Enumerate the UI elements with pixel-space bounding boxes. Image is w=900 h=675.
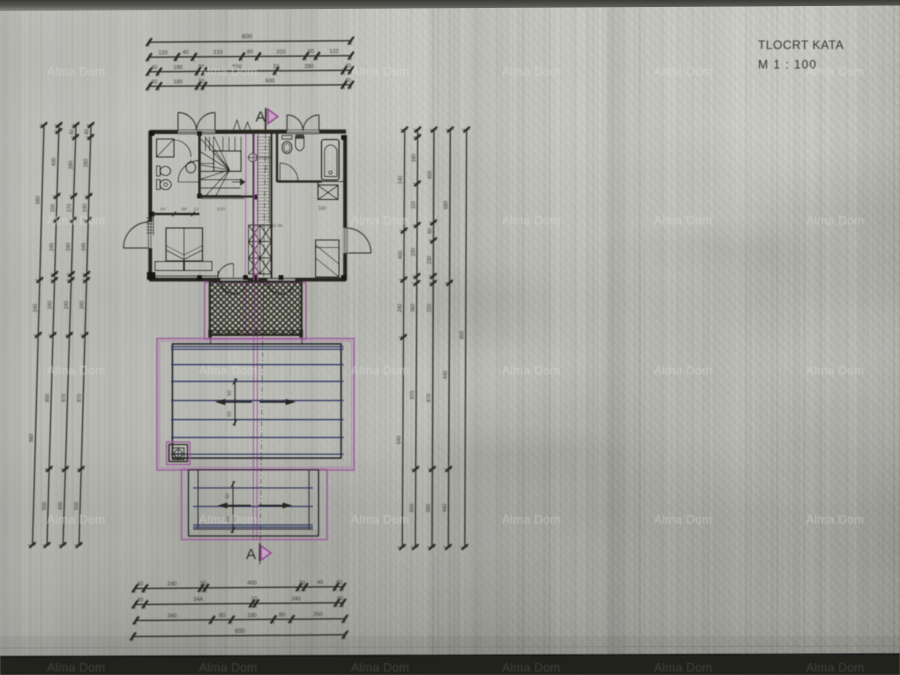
svg-text:870: 870: [77, 394, 83, 403]
svg-text:20: 20: [200, 581, 206, 587]
svg-text:360: 360: [411, 304, 417, 313]
svg-text:Alma Dom: Alma Dom: [502, 661, 560, 675]
svg-text:A: A: [246, 546, 256, 563]
svg-text:Alma Dom: Alma Dom: [806, 364, 864, 378]
svg-text:60: 60: [227, 411, 233, 417]
svg-text:98: 98: [181, 207, 187, 213]
svg-text:200: 200: [50, 204, 56, 213]
svg-text:800: 800: [45, 394, 51, 403]
svg-text:180: 180: [247, 613, 256, 619]
svg-text:Alma Dom: Alma Dom: [351, 65, 409, 79]
svg-text:180: 180: [173, 79, 182, 85]
svg-text:980: 980: [29, 434, 35, 443]
svg-text:84: 84: [160, 207, 166, 213]
svg-text:230: 230: [427, 256, 433, 265]
svg-text:240: 240: [48, 301, 54, 310]
svg-text:Alma Dom: Alma Dom: [654, 661, 712, 675]
svg-text:80: 80: [219, 613, 225, 619]
svg-text:40: 40: [137, 582, 143, 588]
svg-text:245: 245: [49, 243, 55, 252]
svg-text:500: 500: [426, 504, 432, 513]
svg-text:680: 680: [444, 201, 450, 210]
svg-text:Alma Dom: Alma Dom: [502, 214, 560, 228]
svg-text:A: A: [255, 109, 265, 126]
svg-text:10 12 10 10 86: 10 12 10 10 86: [253, 223, 283, 228]
svg-text:245: 245: [81, 243, 87, 252]
svg-text:Alma Dom: Alma Dom: [806, 214, 864, 228]
svg-text:40: 40: [137, 598, 143, 604]
svg-text:260: 260: [84, 159, 90, 168]
svg-text:60: 60: [308, 49, 314, 55]
svg-text:870: 870: [427, 394, 433, 403]
svg-text:169: 169: [318, 206, 327, 212]
svg-text:Alma Dom: Alma Dom: [654, 65, 712, 79]
svg-text:180: 180: [411, 154, 417, 163]
svg-text:40: 40: [151, 80, 157, 86]
svg-text:40: 40: [70, 129, 76, 135]
svg-text:500: 500: [74, 502, 80, 511]
svg-text:Alma Dom: Alma Dom: [502, 364, 560, 378]
svg-text:40: 40: [151, 65, 157, 71]
svg-text:60: 60: [227, 390, 233, 396]
svg-text:40: 40: [85, 129, 91, 135]
svg-text:Alma Dom: Alma Dom: [351, 364, 409, 378]
svg-text:Alma Dom: Alma Dom: [806, 661, 864, 675]
svg-text:20: 20: [299, 580, 305, 586]
svg-text:400: 400: [398, 251, 404, 260]
svg-text:Alma Dom: Alma Dom: [47, 65, 105, 79]
svg-text:30: 30: [198, 79, 204, 85]
svg-text:260: 260: [313, 612, 322, 618]
svg-text:Alma Dom: Alma Dom: [654, 364, 712, 378]
svg-text:Alma Dom: Alma Dom: [199, 65, 257, 79]
svg-text:Alma Dom: Alma Dom: [502, 513, 560, 527]
svg-text:240: 240: [167, 581, 176, 587]
svg-text:120: 120: [158, 50, 167, 56]
svg-text:10: 10: [251, 597, 257, 603]
svg-text:40: 40: [317, 580, 323, 586]
svg-text:640: 640: [397, 436, 403, 445]
svg-text:210: 210: [213, 50, 222, 56]
svg-text:Alma Dom: Alma Dom: [47, 364, 105, 378]
svg-text:Alma Dom: Alma Dom: [654, 513, 712, 527]
svg-text:40: 40: [345, 78, 351, 84]
svg-text:220: 220: [217, 207, 225, 213]
svg-text:460: 460: [442, 504, 448, 513]
svg-text:170: 170: [67, 204, 73, 213]
svg-text:80: 80: [247, 50, 253, 56]
svg-text:80: 80: [279, 613, 285, 619]
svg-text:80: 80: [427, 228, 433, 234]
svg-text:240: 240: [66, 243, 72, 252]
svg-text:Alma Dom: Alma Dom: [199, 661, 257, 675]
svg-text:180: 180: [173, 65, 182, 71]
svg-text:680: 680: [36, 196, 42, 205]
svg-text:500: 500: [409, 504, 415, 513]
svg-text:Alma Dom: Alma Dom: [351, 214, 409, 228]
svg-text:240: 240: [33, 304, 39, 313]
svg-text:500: 500: [42, 502, 48, 511]
svg-text:140: 140: [82, 204, 88, 213]
svg-text:Alma Dom: Alma Dom: [806, 513, 864, 527]
svg-text:Alma Dom: Alma Dom: [654, 214, 712, 228]
svg-text:Alma Dom: Alma Dom: [502, 65, 560, 79]
svg-text:220: 220: [427, 304, 433, 313]
svg-text:Alma Dom: Alma Dom: [351, 661, 409, 675]
svg-text:Alma Dom: Alma Dom: [351, 513, 409, 527]
svg-text:970: 970: [410, 391, 416, 400]
svg-text:230: 230: [411, 248, 417, 257]
svg-text:Alma Dom: Alma Dom: [47, 214, 105, 228]
svg-text:40: 40: [337, 596, 343, 602]
svg-text:310: 310: [276, 49, 285, 55]
svg-text:140: 140: [398, 176, 404, 185]
svg-text:Alma Dom: Alma Dom: [199, 513, 257, 527]
svg-text:600: 600: [235, 629, 246, 635]
svg-text:800: 800: [460, 331, 466, 340]
svg-text:240: 240: [398, 304, 404, 313]
svg-text:600: 600: [265, 79, 274, 85]
svg-text:TLOCRT KATA: TLOCRT KATA: [758, 38, 844, 52]
svg-text:10: 10: [273, 64, 279, 70]
svg-text:345: 345: [291, 596, 300, 602]
svg-text:340: 340: [80, 301, 86, 310]
svg-text:Alma Dom: Alma Dom: [47, 661, 105, 675]
svg-text:400: 400: [58, 502, 64, 511]
svg-text:Alma Dom: Alma Dom: [806, 65, 864, 79]
svg-text:110: 110: [411, 201, 417, 209]
svg-text:Alma Dom: Alma Dom: [47, 513, 105, 527]
svg-text:60: 60: [225, 493, 231, 499]
svg-text:400: 400: [247, 581, 256, 587]
svg-text:122: 122: [329, 49, 338, 55]
svg-text:240: 240: [64, 301, 70, 310]
svg-text:280: 280: [69, 161, 75, 170]
svg-text:440: 440: [443, 371, 449, 380]
svg-text:400: 400: [52, 158, 58, 167]
svg-text:280: 280: [304, 64, 313, 70]
svg-text:600: 600: [242, 34, 253, 41]
svg-text:40: 40: [336, 580, 342, 586]
svg-text:340: 340: [167, 613, 176, 619]
svg-text:970: 970: [61, 394, 67, 403]
svg-text:40: 40: [182, 50, 188, 56]
svg-text:400: 400: [428, 171, 434, 180]
svg-text:344: 344: [193, 597, 202, 603]
svg-text:Alma Dom: Alma Dom: [199, 364, 257, 378]
